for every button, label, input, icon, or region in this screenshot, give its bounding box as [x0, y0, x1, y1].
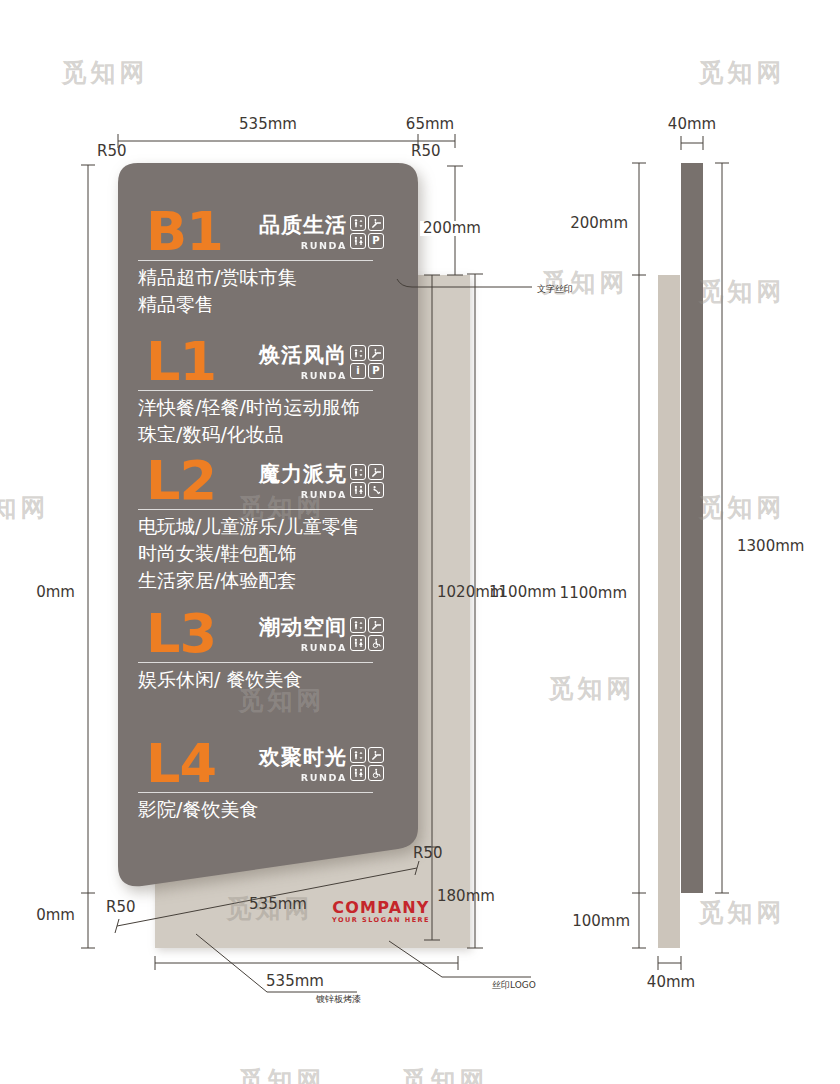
facility-icons: i P — [350, 345, 384, 379]
dim-front-bottom-strip: 180mm — [437, 889, 495, 904]
signage-spec-drawing: 觅知网 觅知网 觅知网 觅知网 觅知网 觅知网 觅知网 觅知网 觅知网 觅知网 … — [0, 0, 840, 1084]
escalator-icon — [368, 464, 384, 480]
section-divider — [138, 509, 373, 510]
nursing-room-icon — [368, 482, 384, 498]
floor-section-b1: B1 品质生活 RUNDA P 精品超市/赏味市集 精品零售 — [138, 205, 388, 330]
escalator-icon — [368, 617, 384, 633]
callout-logo-silkprint: 丝印LOGO — [492, 980, 536, 990]
elevator-icon — [350, 747, 366, 763]
elevator-icon — [350, 464, 366, 480]
category-line: 精品零售 — [138, 291, 388, 318]
parking-icon: P — [368, 363, 384, 379]
floor-title: 焕活风尚 — [259, 344, 347, 367]
section-divider — [138, 260, 373, 261]
elevator-icon — [350, 345, 366, 361]
facility-icons: P — [350, 215, 384, 249]
escalator-icon — [368, 215, 384, 231]
dim-side-height: 1100mm — [560, 586, 627, 601]
dim-top-width: 535mm — [239, 117, 297, 132]
category-line: 生活家居/体验配套 — [138, 567, 388, 594]
dim-front-gap: 200mm — [420, 221, 484, 236]
floor-title: 潮动空间 — [259, 616, 347, 639]
dim-front-total-height: 1100mm — [489, 585, 556, 600]
category-line: 洋快餐/轻餐/时尚运动服饰 — [138, 394, 388, 421]
floor-section-l3: L3 潮动空间 RUNDA 娱乐休闲/ 餐饮美食 — [138, 607, 388, 732]
callout-galvanized-paint: 镀锌板烤漆 — [316, 994, 361, 1004]
dim-top-offset: 65mm — [406, 117, 454, 132]
dim-left-cut-mid: 0mm — [36, 585, 75, 600]
wheelchair-icon — [368, 635, 384, 651]
floor-title: 魔力派克 — [259, 463, 347, 486]
brand-label: RUNDA — [259, 370, 347, 381]
section-divider — [138, 792, 373, 793]
floor-categories: 影院/餐饮美食 — [138, 796, 388, 823]
escalator-icon — [368, 747, 384, 763]
dim-bottom-width: 535mm — [266, 974, 324, 989]
dim-r50-bottom-left: R50 — [106, 900, 136, 915]
facility-icons — [350, 617, 384, 651]
side-main-bar — [681, 163, 703, 893]
floor-categories: 电玩城/儿童游乐/儿童零售 时尚女装/鞋包配饰 生活家居/体验配套 — [138, 513, 388, 594]
company-logo: COMPANY YOUR SLOGAN HERE — [332, 900, 430, 924]
escalator-icon — [368, 345, 384, 361]
facility-icons — [350, 747, 384, 781]
brand-label: RUNDA — [259, 772, 347, 783]
info-icon: i — [350, 363, 366, 379]
category-line: 娱乐休闲/ 餐饮美食 — [138, 666, 388, 693]
floor-section-l1: L1 焕活风尚 RUNDA i P 洋快餐/轻餐/时尚运动服饰 珠宝/数码/化妆… — [138, 335, 388, 460]
restroom-icon — [350, 765, 366, 781]
category-line: 电玩城/儿童游乐/儿童零售 — [138, 513, 388, 540]
callout-text-silkprint: 文字丝印 — [537, 284, 573, 294]
floor-categories: 洋快餐/轻餐/时尚运动服饰 珠宝/数码/化妆品 — [138, 394, 388, 448]
category-line: 时尚女装/鞋包配饰 — [138, 540, 388, 567]
category-line: 精品超市/赏味市集 — [138, 264, 388, 291]
floor-section-l4: L4 欢聚时光 RUNDA 影院/餐饮美食 — [138, 737, 388, 862]
brand-label: RUNDA — [259, 240, 347, 251]
restroom-icon — [350, 635, 366, 651]
floor-level: L4 — [146, 737, 216, 791]
section-divider — [138, 662, 373, 663]
brand-label: RUNDA — [259, 489, 347, 500]
category-line: 珠宝/数码/化妆品 — [138, 421, 388, 448]
company-name: COMPANY — [332, 900, 430, 916]
floor-categories: 娱乐休闲/ 餐饮美食 — [138, 666, 388, 693]
floor-categories: 精品超市/赏味市集 精品零售 — [138, 264, 388, 318]
elevator-icon — [350, 215, 366, 231]
company-slogan: YOUR SLOGAN HERE — [332, 917, 430, 924]
dim-side-top-width: 40mm — [668, 117, 716, 132]
dim-side-bottom-ext: 100mm — [572, 914, 630, 929]
restroom-icon — [350, 482, 366, 498]
floor-level: L3 — [146, 607, 216, 661]
floor-level: L2 — [146, 454, 216, 508]
facility-icons — [350, 464, 384, 498]
restroom-icon — [350, 233, 366, 249]
floor-level: L1 — [146, 335, 216, 389]
side-backing-bar — [658, 275, 680, 948]
wheelchair-icon — [368, 765, 384, 781]
elevator-icon — [350, 617, 366, 633]
brand-label: RUNDA — [259, 642, 347, 653]
dim-r50-top-right: R50 — [411, 144, 441, 159]
floor-title: 欢聚时光 — [259, 746, 347, 769]
dim-r50-top-left: R50 — [97, 144, 127, 159]
dim-slant-width: 535mm — [249, 897, 307, 912]
dim-side-gap: 200mm — [570, 216, 628, 231]
floor-level: B1 — [146, 205, 223, 259]
dim-left-cut-bottom: 0mm — [36, 908, 75, 923]
floor-title: 品质生活 — [259, 214, 347, 237]
section-divider — [138, 390, 373, 391]
parking-icon: P — [368, 233, 384, 249]
dim-side-bottom-width: 40mm — [647, 975, 695, 990]
dim-side-total-height: 1300mm — [737, 539, 804, 554]
floor-section-l2: L2 魔力派克 RUNDA 电玩城/儿童游乐/儿童零售 时尚女装/鞋包配饰 生活… — [138, 454, 388, 579]
category-line: 影院/餐饮美食 — [138, 796, 388, 823]
dim-r50-bottom-right: R50 — [413, 846, 443, 861]
